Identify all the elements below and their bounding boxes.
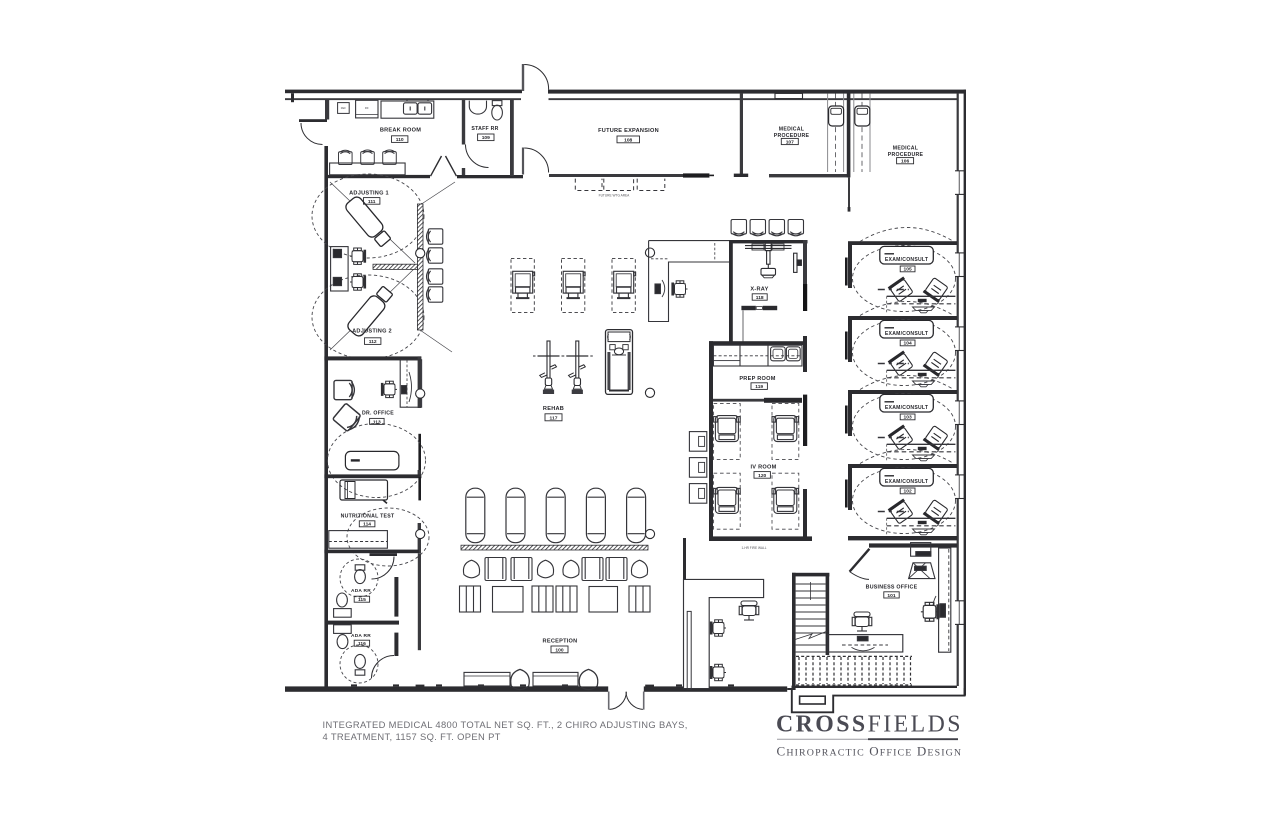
svg-text:105: 105: [904, 267, 912, 273]
svg-text:BREAK ROOM: BREAK ROOM: [380, 127, 421, 133]
svg-text:ADA RR: ADA RR: [351, 633, 371, 639]
svg-text:102: 102: [904, 489, 912, 495]
svg-text:103: 103: [904, 415, 912, 421]
svg-text:EXAM/CONSULT: EXAM/CONSULT: [885, 405, 929, 411]
svg-text:BUSINESS OFFICE: BUSINESS OFFICE: [866, 585, 918, 591]
svg-text:106: 106: [901, 159, 909, 165]
svg-text:120: 120: [758, 473, 766, 479]
svg-text:NUTRITIONAL TEST: NUTRITIONAL TEST: [341, 514, 395, 520]
svg-text:ADA RR: ADA RR: [351, 588, 371, 594]
svg-text:118: 118: [756, 295, 764, 301]
svg-text:DR. OFFICE: DR. OFFICE: [362, 411, 394, 417]
svg-text:EXAM/CONSULT: EXAM/CONSULT: [885, 331, 929, 337]
svg-text:101: 101: [887, 593, 895, 599]
svg-text:REF: REF: [341, 106, 347, 110]
svg-text:107: 107: [786, 139, 794, 145]
svg-text:108: 108: [624, 137, 632, 143]
svg-text:X-RAY: X-RAY: [750, 286, 768, 292]
svg-text:1-HR FIRE WALL: 1-HR FIRE WALL: [741, 546, 766, 550]
svg-text:100: 100: [555, 647, 563, 653]
svg-text:113: 113: [373, 419, 381, 425]
svg-text:ADJUSTING 2: ADJUSTING 2: [352, 328, 392, 334]
svg-text:IV ROOM: IV ROOM: [751, 464, 777, 470]
svg-text:EXAM/CONSULT: EXAM/CONSULT: [885, 257, 929, 263]
svg-text:110: 110: [396, 137, 404, 143]
svg-text:119: 119: [755, 384, 763, 390]
svg-text:4 TREATMENT, 1157 SQ. FT. OPEN: 4 TREATMENT, 1157 SQ. FT. OPEN PT: [323, 731, 501, 742]
svg-text:REHAB: REHAB: [543, 406, 564, 412]
svg-text:PREP ROOM: PREP ROOM: [739, 376, 775, 382]
svg-text:FUTURE EXPANSION: FUTURE EXPANSION: [598, 128, 659, 134]
svg-text:109: 109: [482, 135, 490, 141]
svg-text:INTEGRATED MEDICAL 4800 TOTAL: INTEGRATED MEDICAL 4800 TOTAL NET SQ. FT…: [323, 719, 688, 730]
svg-text:104: 104: [904, 341, 912, 347]
svg-text:STAFF RR: STAFF RR: [471, 126, 498, 132]
svg-text:112: 112: [369, 339, 377, 345]
svg-text:111: 111: [368, 199, 376, 205]
svg-text:FUTURE WTG AREA: FUTURE WTG AREA: [599, 194, 631, 198]
svg-text:MEDICAL: MEDICAL: [779, 127, 805, 133]
svg-text:EXAM/CONSULT: EXAM/CONSULT: [885, 479, 929, 485]
svg-text:MEDICAL: MEDICAL: [893, 146, 919, 152]
svg-text:115: 115: [358, 597, 366, 603]
svg-text:117: 117: [550, 415, 558, 421]
svg-text:116: 116: [358, 641, 366, 647]
svg-text:RECEPTION: RECEPTION: [543, 639, 578, 645]
svg-text:RF: RF: [365, 106, 369, 110]
svg-text:CROSSFIELDS: CROSSFIELDS: [776, 712, 963, 738]
svg-text:ADJUSTING 1: ADJUSTING 1: [349, 190, 389, 196]
svg-text:114: 114: [363, 522, 371, 528]
